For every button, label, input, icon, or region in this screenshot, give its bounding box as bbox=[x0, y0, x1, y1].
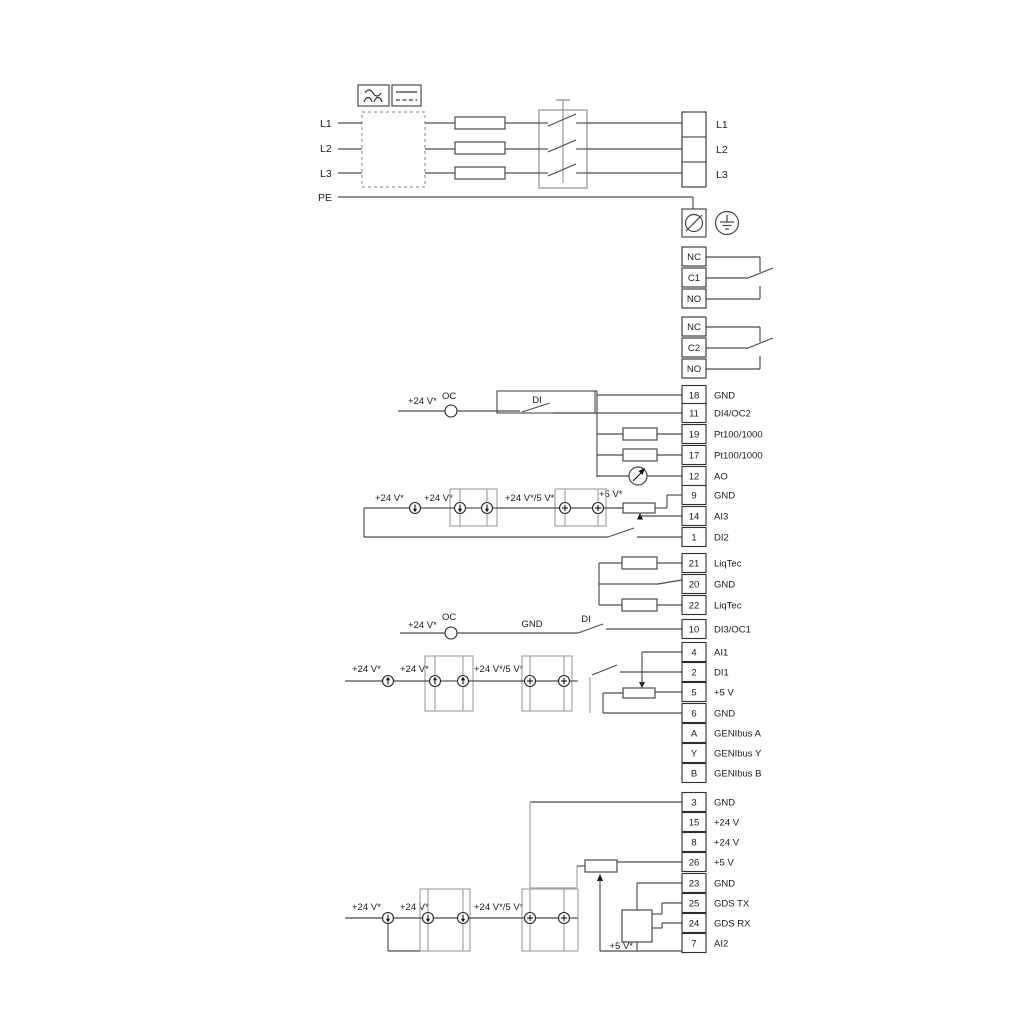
potentiometer bbox=[585, 860, 617, 872]
di1-switch-icon bbox=[592, 665, 617, 675]
terminal-pin-18: 18 bbox=[689, 391, 700, 402]
terminal-label-B: GENIbus B bbox=[714, 769, 762, 780]
terminal-strip-2: 21LiqTec20GND22LiqTec bbox=[682, 554, 742, 615]
terminal-label-14: AI3 bbox=[714, 512, 728, 523]
pt100-resistor-1 bbox=[623, 428, 657, 440]
relay2-no: NO bbox=[687, 364, 701, 375]
input-label-l3: L3 bbox=[320, 168, 332, 180]
pot-wiper-arrow-icon bbox=[597, 874, 603, 881]
relay1-no: NO bbox=[687, 294, 701, 305]
voltage-source-icon bbox=[525, 913, 536, 924]
liqtec-resistor-2 bbox=[622, 599, 657, 611]
ai1-di1-section: +24 V* +24 V* +24 V*/5 V* bbox=[352, 656, 655, 711]
terminal-label-3: GND bbox=[714, 798, 735, 809]
terminal-label-2: DI1 bbox=[714, 668, 729, 679]
terminal-pin-8: 8 bbox=[691, 838, 696, 849]
terminal-pin-A: A bbox=[691, 729, 698, 740]
power-section: L1 L2 L3 PE L1 L2 L3 bbox=[318, 85, 739, 237]
output-label-l2: L2 bbox=[716, 144, 728, 156]
terminal-label-25: GDS TX bbox=[714, 899, 750, 910]
open-collector-icon bbox=[445, 627, 457, 639]
terminal-label-A: GENIbus A bbox=[714, 729, 762, 740]
terminal-pin-17: 17 bbox=[689, 451, 700, 462]
analog-out-meter-icon bbox=[629, 467, 647, 485]
terminal-pin-26: 26 bbox=[689, 858, 700, 869]
terminal-pin-22: 22 bbox=[689, 601, 700, 612]
current-source-icon bbox=[383, 913, 394, 924]
terminal-strip-1: 18GND11DI4/OC219Pt100/100017Pt100/100012… bbox=[682, 386, 763, 547]
terminal-pin-4: 4 bbox=[691, 648, 696, 659]
terminal-label-7: AI2 bbox=[714, 939, 728, 950]
di-label: DI bbox=[581, 614, 591, 625]
terminal-label-18: GND bbox=[714, 391, 735, 402]
terminal-pin-11: 11 bbox=[689, 409, 699, 420]
terminal-pin-24: 24 bbox=[689, 919, 700, 930]
aux-gray-wires bbox=[428, 489, 598, 951]
power-wires bbox=[338, 114, 693, 209]
ai2-gds-section: +24 V* +24 V* +24 V*/5 V* +5 V* bbox=[352, 860, 652, 952]
terminal-pin-21: 21 bbox=[689, 559, 700, 570]
relay2-nc: NC bbox=[687, 322, 701, 333]
v24-label: +24 V* bbox=[400, 902, 429, 913]
current-source-icon bbox=[430, 676, 441, 687]
terminal-label-9: GND bbox=[714, 491, 735, 502]
oc-label: OC bbox=[442, 391, 456, 402]
terminal-pin-10: 10 bbox=[689, 625, 700, 636]
wiring-diagram-page: L1 L2 L3 PE L1 L2 L3 bbox=[0, 0, 1024, 1024]
terminal-label-1: DI2 bbox=[714, 533, 729, 544]
terminal-pin-25: 25 bbox=[689, 899, 700, 910]
di-switch-icon bbox=[578, 624, 603, 633]
current-source-icon bbox=[383, 676, 394, 687]
terminal-pin-9: 9 bbox=[691, 491, 696, 502]
di3-oc1-section: +24 V* OC GND DI bbox=[408, 612, 603, 639]
di2-switch-icon bbox=[608, 528, 634, 537]
voltage-source-icon bbox=[525, 676, 536, 687]
v24-v5-label: +24 V*/5 V* bbox=[474, 664, 524, 675]
voltage-source-icon bbox=[559, 913, 570, 924]
terminal-label-23: GND bbox=[714, 879, 735, 890]
potentiometer bbox=[623, 688, 655, 698]
relay2-c2: C2 bbox=[688, 343, 700, 354]
v24-label: +24 V* bbox=[352, 664, 381, 675]
terminal-label-15: +24 V bbox=[714, 818, 740, 829]
terminal-label-22: LiqTec bbox=[714, 601, 742, 612]
v24-v5-label: +24 V*/5 V* bbox=[474, 902, 524, 913]
terminal-pin-Y: Y bbox=[691, 749, 698, 760]
terminal-pin-23: 23 bbox=[689, 879, 700, 890]
v24-label: +24 V* bbox=[408, 396, 437, 407]
current-source-icon bbox=[458, 676, 469, 687]
v5-label: +5 V* bbox=[609, 941, 633, 952]
di4-oc2-section: +24 V* OC DI bbox=[408, 391, 657, 485]
fuse-l1 bbox=[455, 117, 505, 129]
v24-label: +24 V* bbox=[352, 902, 381, 913]
terminal-label-11: DI4/OC2 bbox=[714, 409, 751, 420]
relay-2-block: NC C2 NO bbox=[682, 317, 706, 378]
voltage-source-icon bbox=[593, 503, 604, 514]
terminal-label-4: AI1 bbox=[714, 648, 728, 659]
terminal-pin-B: B bbox=[691, 769, 697, 780]
ai3-di2-section: +24 V* +24 V* +24 V*/5 V* +5 V* bbox=[375, 489, 655, 537]
v24-label: +24 V* bbox=[375, 493, 404, 504]
di-label: DI bbox=[532, 395, 542, 406]
v5-label: +5 V* bbox=[599, 489, 623, 500]
open-collector-icon bbox=[445, 405, 457, 417]
current-source-icon bbox=[410, 503, 421, 514]
terminal-label-5: +5 V bbox=[714, 688, 734, 699]
ac-symbol-box bbox=[358, 85, 389, 106]
terminal-pin-12: 12 bbox=[689, 472, 700, 483]
terminal-label-12: AO bbox=[714, 472, 728, 483]
terminal-pin-15: 15 bbox=[689, 818, 700, 829]
terminal-pin-5: 5 bbox=[691, 688, 696, 699]
terminal-pin-1: 1 bbox=[691, 533, 696, 544]
earth-icon bbox=[716, 212, 739, 235]
relay-contact-wires bbox=[706, 257, 773, 369]
oc-label: OC bbox=[442, 612, 456, 623]
terminal-pin-3: 3 bbox=[691, 798, 696, 809]
terminal-label-Y: GENIbus Y bbox=[714, 749, 762, 760]
terminal-pin-7: 7 bbox=[691, 939, 696, 950]
v24-label: +24 V* bbox=[408, 620, 437, 631]
relay1-nc: NC bbox=[687, 252, 701, 263]
terminal-label-10: DI3/OC1 bbox=[714, 625, 751, 636]
terminal-pin-14: 14 bbox=[689, 512, 700, 523]
output-label-l1: L1 bbox=[716, 119, 728, 131]
terminal-label-19: Pt100/1000 bbox=[714, 430, 763, 441]
input-label-pe: PE bbox=[318, 192, 332, 204]
dc-symbol-box bbox=[392, 85, 421, 106]
terminal-label-24: GDS RX bbox=[714, 919, 751, 930]
terminal-pin-6: 6 bbox=[691, 709, 696, 720]
wiring-diagram: L1 L2 L3 PE L1 L2 L3 bbox=[0, 0, 1024, 1024]
terminal-label-26: +5 V bbox=[714, 858, 734, 869]
v24-v5-label: +24 V*/5 V* bbox=[505, 493, 555, 504]
terminal-strip-4: 3GND15+24 V8+24 V26+5 V23GND25GDS TX24GD… bbox=[682, 793, 751, 953]
terminal-pin-19: 19 bbox=[689, 430, 700, 441]
fuse-l2 bbox=[455, 142, 505, 154]
voltage-source-icon bbox=[560, 503, 571, 514]
pt100-resistor-2 bbox=[623, 449, 657, 461]
v24-label: +24 V* bbox=[424, 493, 453, 504]
emc-filter-box bbox=[362, 112, 425, 187]
terminal-label-20: GND bbox=[714, 580, 735, 591]
fuse-l3 bbox=[455, 167, 505, 179]
output-label-l3: L3 bbox=[716, 169, 728, 181]
current-source-icon bbox=[482, 503, 493, 514]
terminal-label-17: Pt100/1000 bbox=[714, 451, 763, 462]
current-source-icon bbox=[458, 913, 469, 924]
relay1-c1: C1 bbox=[688, 273, 700, 284]
current-source-icon bbox=[423, 913, 434, 924]
terminal-label-21: LiqTec bbox=[714, 559, 742, 570]
input-label-l2: L2 bbox=[320, 143, 332, 155]
terminal-label-6: GND bbox=[714, 709, 735, 720]
gnd-label: GND bbox=[521, 619, 542, 630]
liqtec-resistor-1 bbox=[622, 557, 657, 569]
input-label-l1: L1 bbox=[320, 118, 332, 130]
voltage-source-icon bbox=[559, 676, 570, 687]
relay-1-block: NC C1 NO bbox=[682, 247, 706, 308]
gds-sensor-box bbox=[622, 910, 652, 942]
terminal-pin-20: 20 bbox=[689, 580, 700, 591]
mains-out-block bbox=[682, 112, 706, 187]
potentiometer bbox=[623, 503, 655, 513]
terminal-strip-3: 10DI3/OC14AI12DI15+5 V6GNDAGENIbus AYGEN… bbox=[682, 620, 762, 783]
terminal-label-8: +24 V bbox=[714, 838, 740, 849]
terminal-pin-2: 2 bbox=[691, 668, 696, 679]
current-source-icon bbox=[455, 503, 466, 514]
di-box bbox=[497, 391, 595, 413]
